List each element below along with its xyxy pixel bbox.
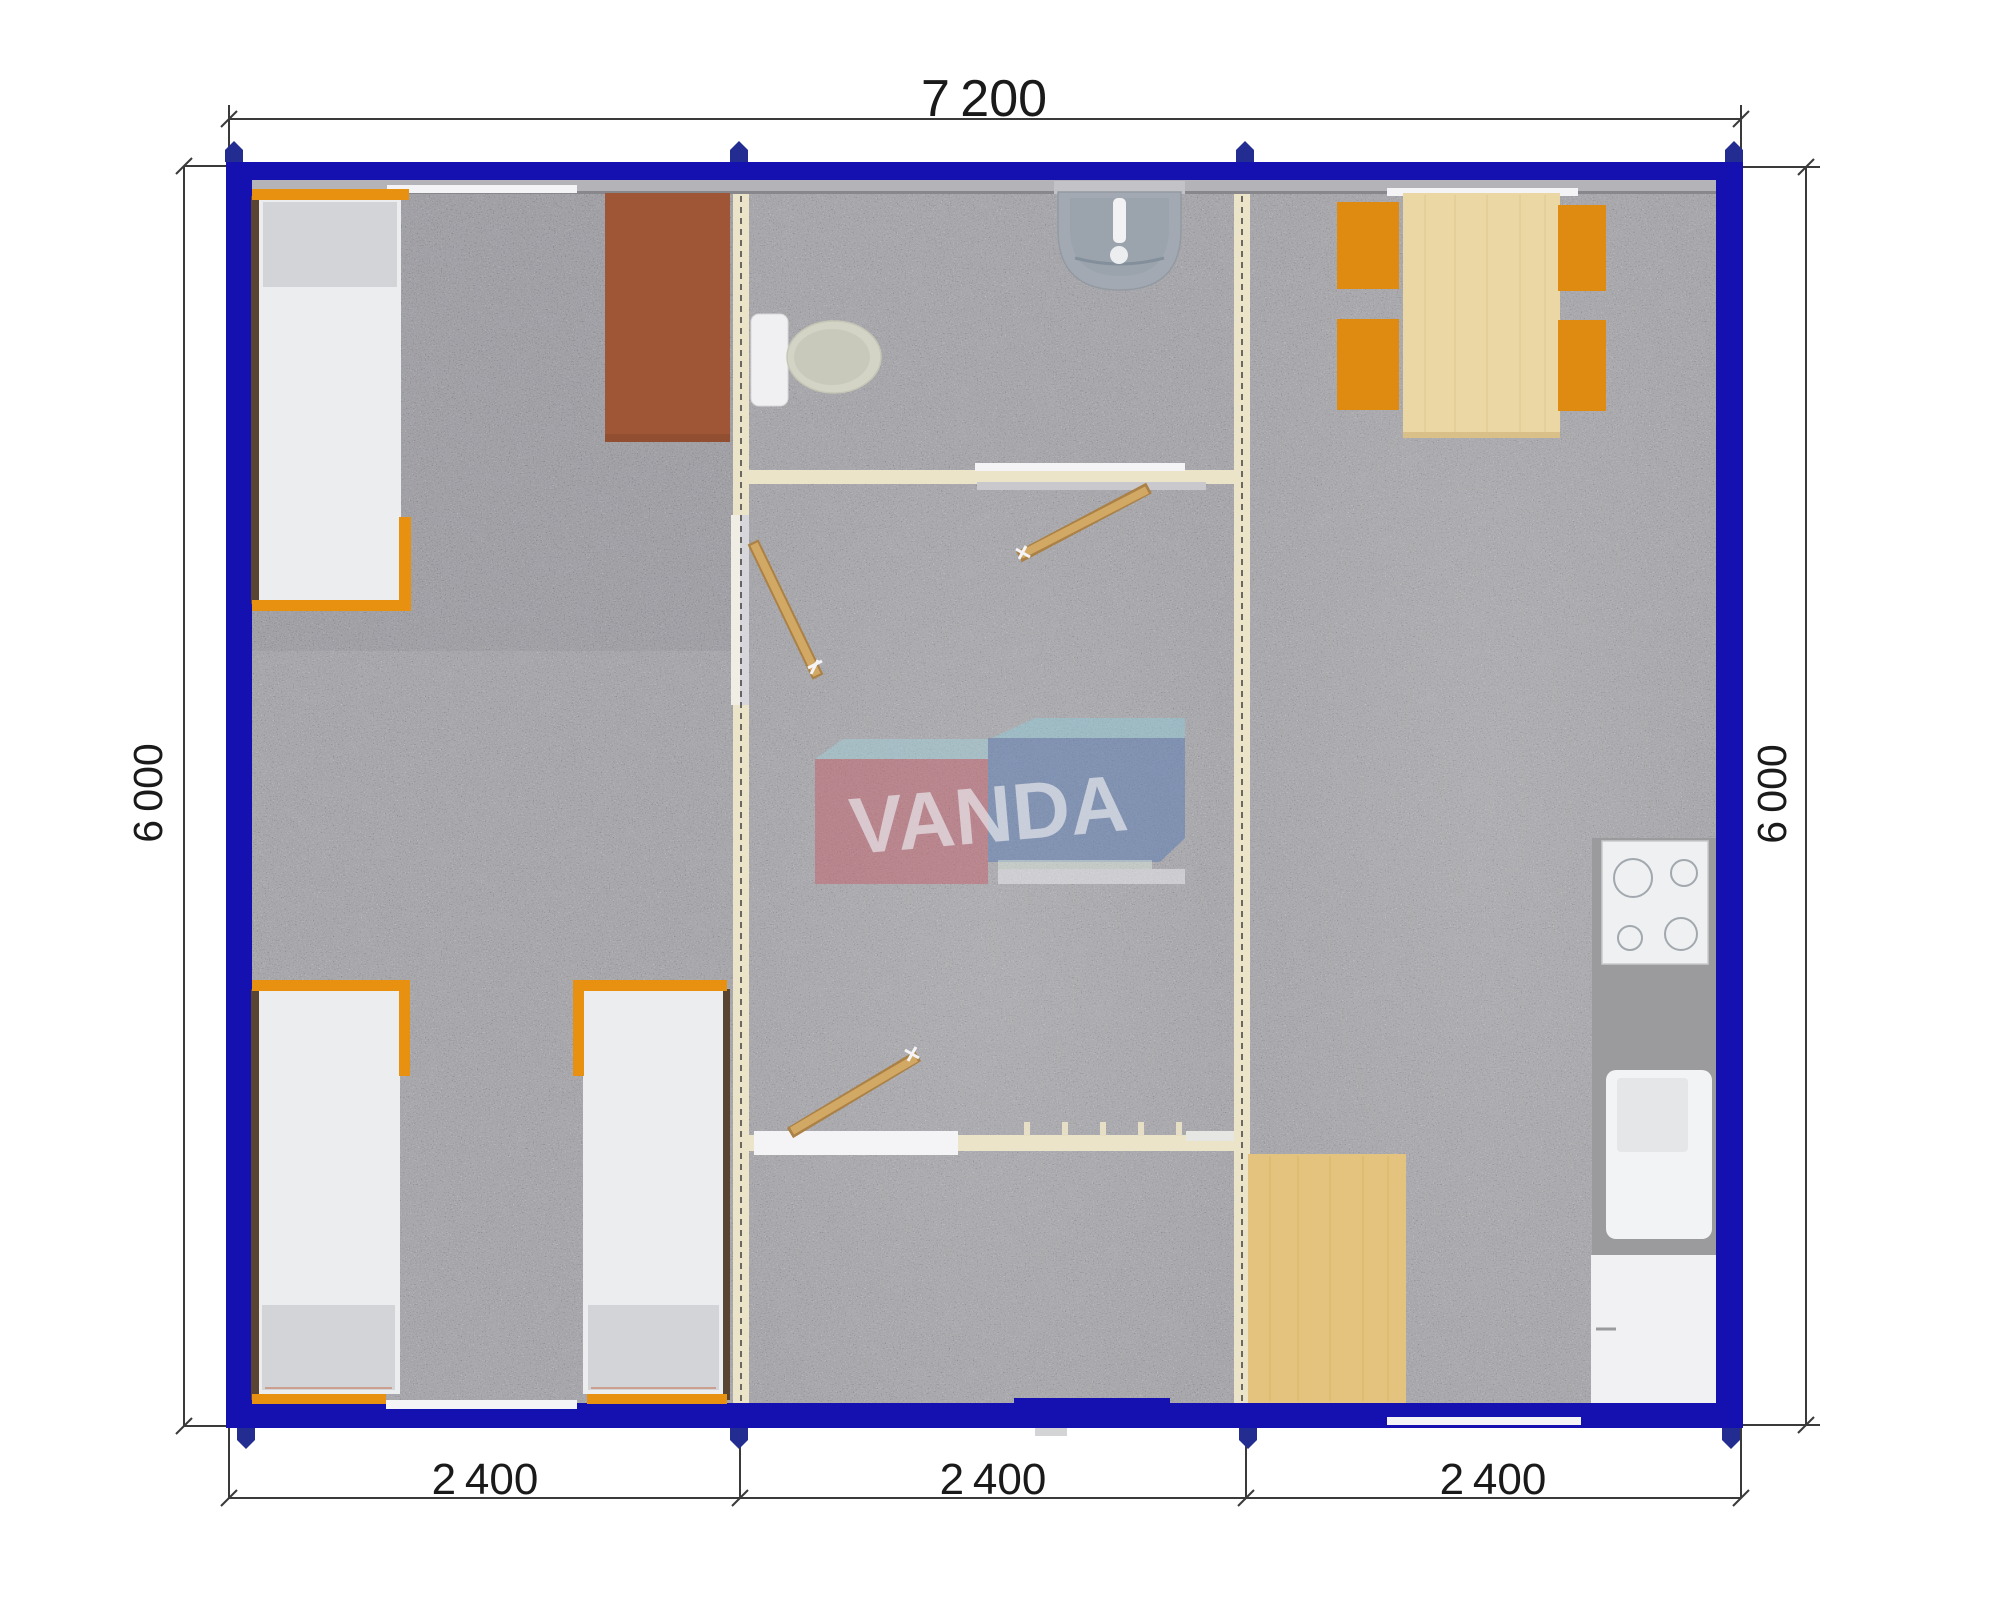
svg-text:2 400: 2 400 — [940, 1455, 1047, 1504]
svg-text:6 000: 6 000 — [125, 743, 171, 842]
svg-text:7 200: 7 200 — [921, 70, 1047, 128]
svg-text:2 400: 2 400 — [1440, 1455, 1547, 1504]
svg-text:2 400: 2 400 — [432, 1455, 539, 1504]
svg-text:6 000: 6 000 — [1749, 744, 1795, 843]
